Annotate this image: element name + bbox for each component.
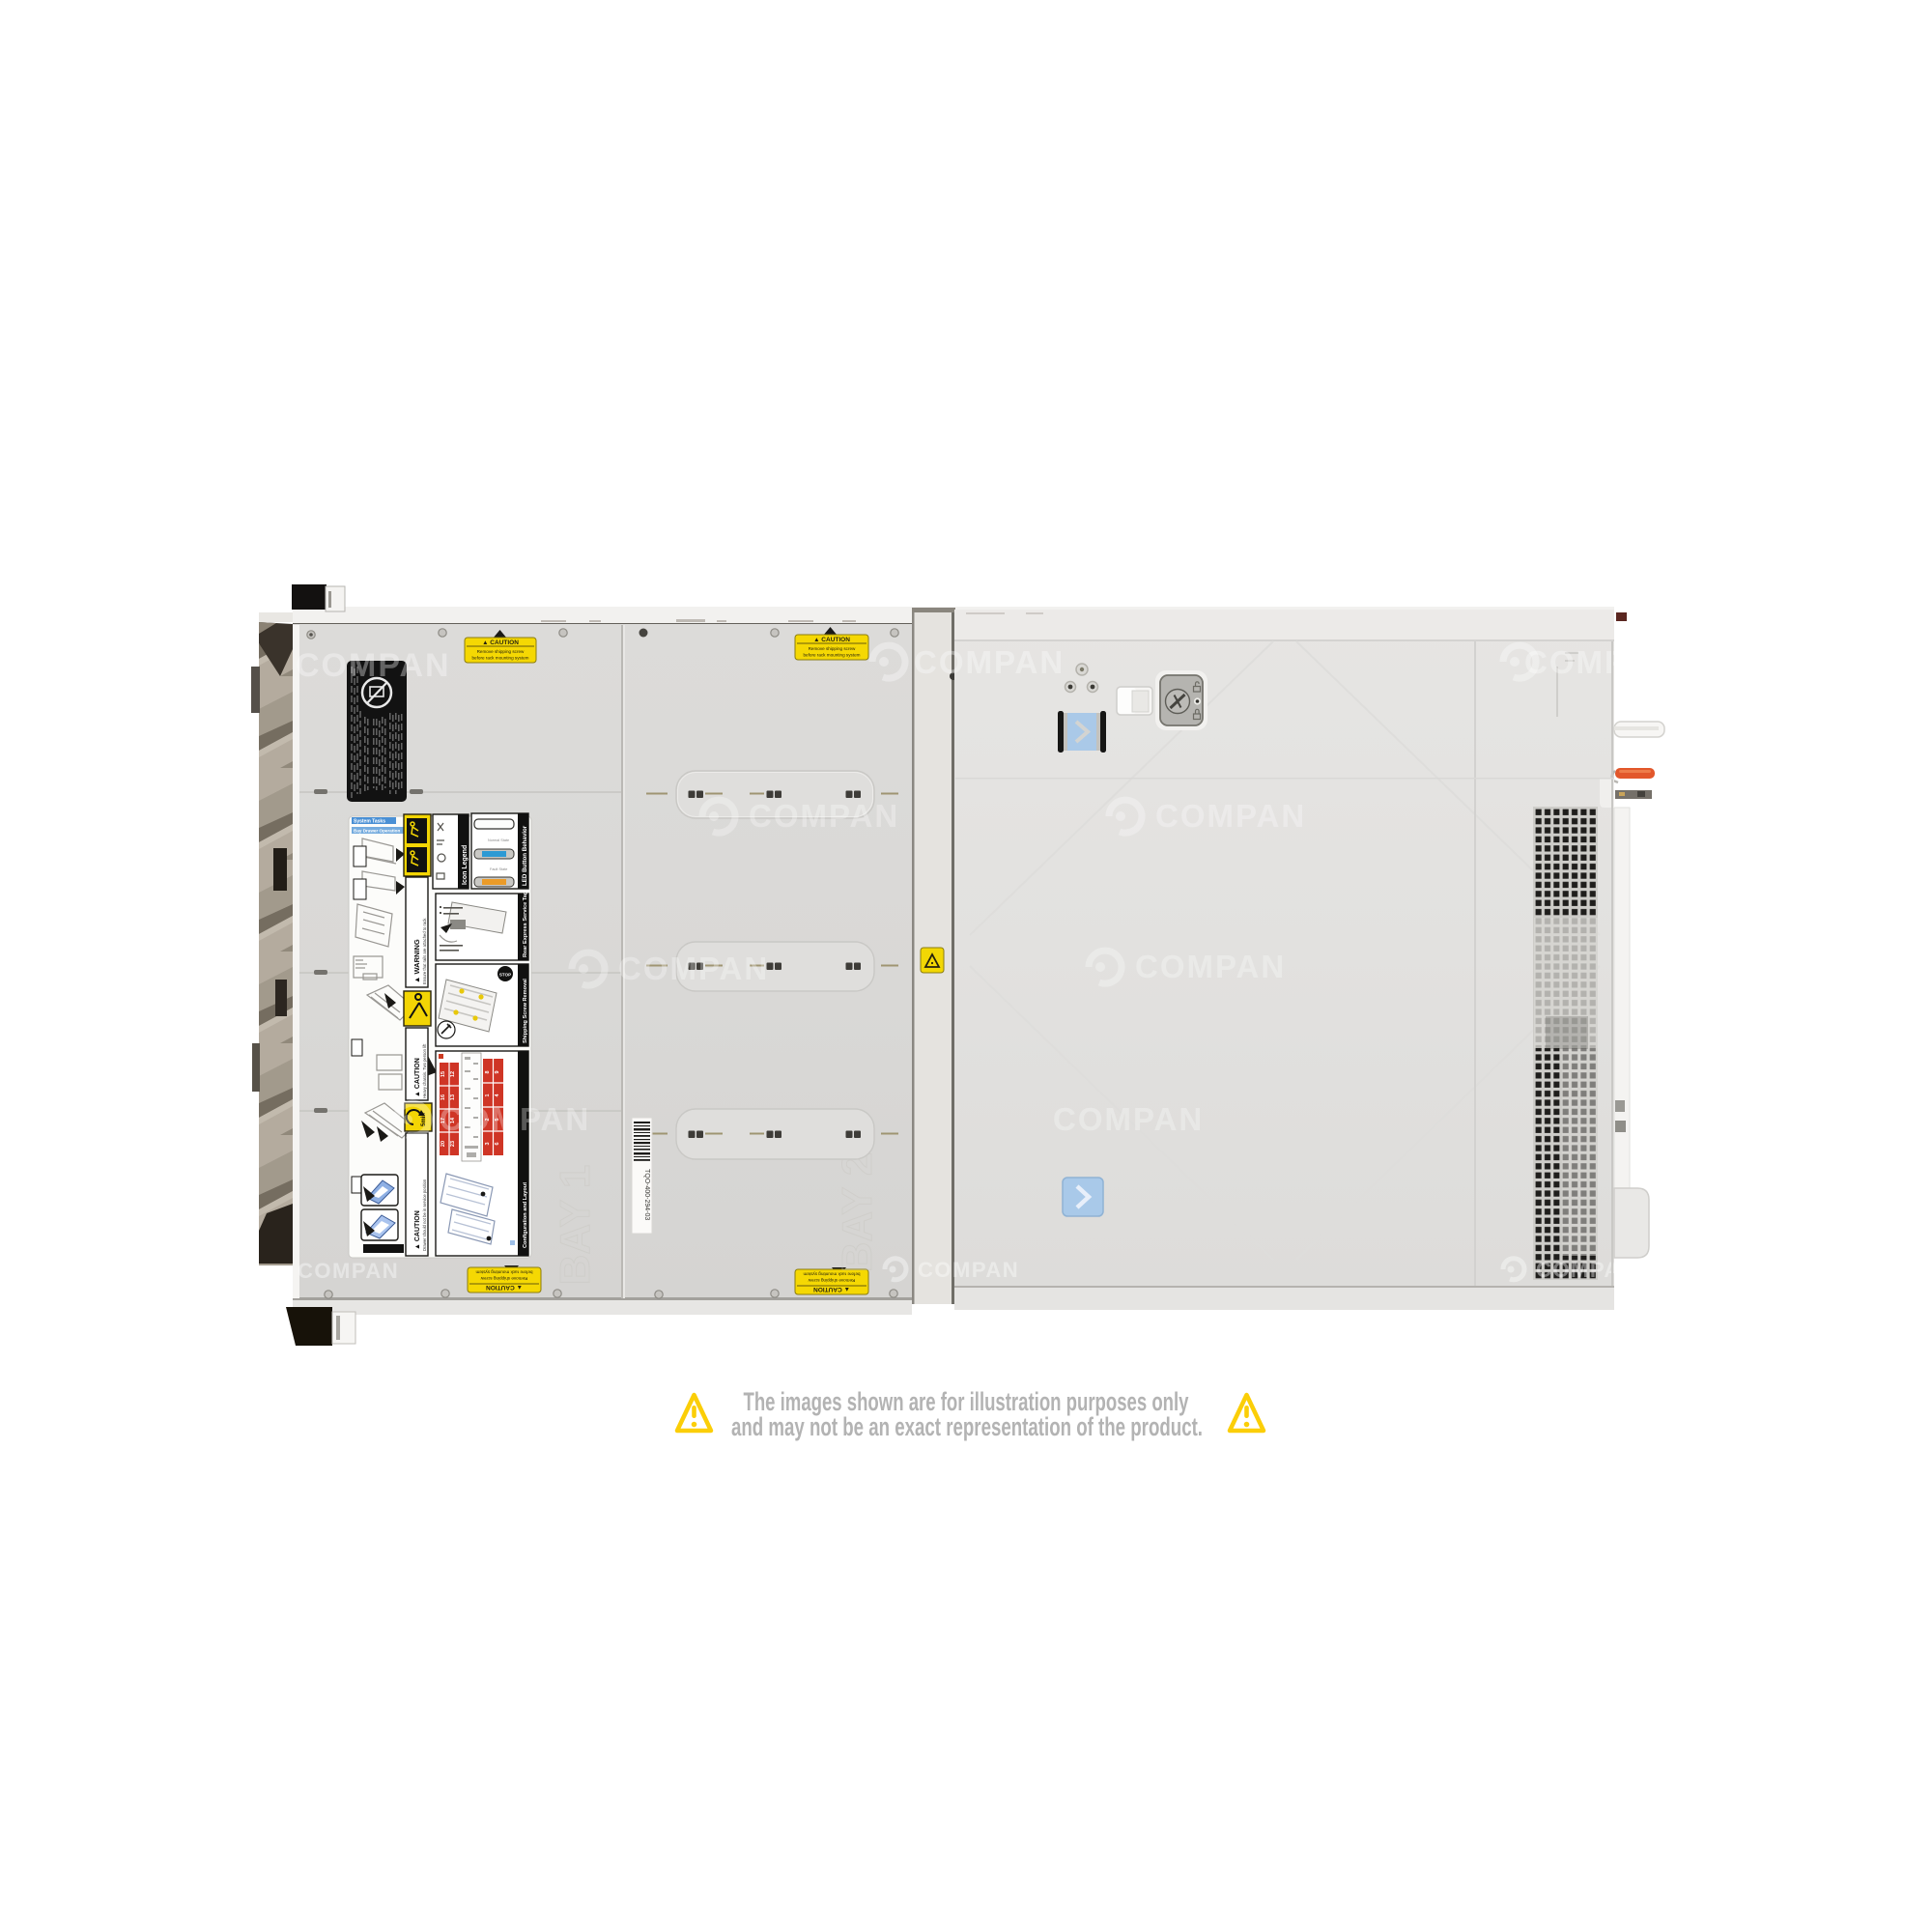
svg-text:▲ CAUTION: ▲ CAUTION xyxy=(813,1286,850,1293)
svg-text:23: 23 xyxy=(450,1141,456,1147)
svg-text:▲ WARNING: ▲ WARNING xyxy=(412,939,421,983)
svg-text:COMPAN: COMPAN xyxy=(1524,644,1675,680)
svg-text:▲ CAUTION: ▲ CAUTION xyxy=(486,1284,523,1291)
svg-text:Configuration and Layout: Configuration and Layout xyxy=(523,1182,528,1248)
svg-text:Remove shipping screw: Remove shipping screw xyxy=(480,1276,527,1281)
svg-text:3: 3 xyxy=(485,1142,491,1145)
svg-text:Ensure that rails are attached: Ensure that rails are attached to rack xyxy=(422,918,427,984)
svg-text:9: 9 xyxy=(495,1070,500,1073)
svg-text:13: 13 xyxy=(450,1094,456,1100)
svg-text:BAY 2: BAY 2 xyxy=(834,1152,881,1273)
svg-text:COMPAN: COMPAN xyxy=(298,1259,399,1283)
svg-text:15: 15 xyxy=(440,1071,446,1077)
svg-text:Icon Legend: Icon Legend xyxy=(462,845,469,885)
svg-text:20: 20 xyxy=(440,1141,446,1147)
svg-text:6: 6 xyxy=(495,1142,500,1145)
svg-text:16: 16 xyxy=(440,1094,446,1100)
svg-text:System Tasks: System Tasks xyxy=(354,819,385,825)
svg-text:Remove shipping screw: Remove shipping screw xyxy=(477,649,525,654)
svg-text:1: 1 xyxy=(485,1094,491,1096)
svg-text:▲ CAUTION: ▲ CAUTION xyxy=(813,637,850,643)
svg-text:12: 12 xyxy=(450,1071,456,1077)
svg-text:COMPAN: COMPAN xyxy=(749,798,899,834)
svg-text:COMPAN: COMPAN xyxy=(914,644,1065,680)
svg-text:Shipping Screw Removal: Shipping Screw Removal xyxy=(523,979,528,1043)
svg-text:COMPAN: COMPAN xyxy=(296,647,451,684)
svg-text:Remove shipping screw: Remove shipping screw xyxy=(808,1278,855,1283)
svg-text:▲ CAUTION: ▲ CAUTION xyxy=(482,639,519,646)
svg-text:▲ CAUTION: ▲ CAUTION xyxy=(414,1058,421,1097)
svg-text:Fault State: Fault State xyxy=(490,867,507,871)
svg-text:COMPAN: COMPAN xyxy=(918,1258,1019,1282)
svg-text:STOP: STOP xyxy=(499,973,511,978)
svg-text:Normal State: Normal State xyxy=(488,838,509,842)
svg-text:Remove shipping screw: Remove shipping screw xyxy=(809,646,856,651)
svg-text:COMPAN: COMPAN xyxy=(618,951,769,986)
svg-text:COMPAN: COMPAN xyxy=(1135,949,1286,984)
svg-text:COMPAN: COMPAN xyxy=(440,1101,590,1137)
svg-text:before rack mounting system: before rack mounting system xyxy=(472,656,529,661)
svg-text:and may not be an exact repres: and may not be an exact representation o… xyxy=(731,1412,1203,1441)
svg-text:Heavy chassis. Two person lift: Heavy chassis. Two person lift xyxy=(422,1043,427,1098)
svg-text:before rack mounting system: before rack mounting system xyxy=(475,1270,532,1275)
svg-text:COMPAN: COMPAN xyxy=(1536,1258,1637,1282)
svg-text:▲ CAUTION: ▲ CAUTION xyxy=(414,1210,421,1250)
svg-text:BAY 1: BAY 1 xyxy=(552,1165,599,1286)
svg-text:COMPAN: COMPAN xyxy=(1053,1101,1204,1137)
svg-text:LED Button Behavior: LED Button Behavior xyxy=(522,825,528,886)
svg-text:8: 8 xyxy=(485,1070,491,1073)
svg-text:Drawer should not be in servic: Drawer should not be in service position xyxy=(422,1179,427,1251)
svg-text:Rear Express Service Tag: Rear Express Service Tag xyxy=(523,891,528,957)
svg-text:COMPAN: COMPAN xyxy=(1155,798,1306,834)
svg-text:TQO-400-294-03: TQO-400-294-03 xyxy=(643,1169,650,1220)
svg-text:before rack mounting system: before rack mounting system xyxy=(804,653,861,658)
svg-text:Bay Drawer Operation: Bay Drawer Operation xyxy=(354,829,400,834)
